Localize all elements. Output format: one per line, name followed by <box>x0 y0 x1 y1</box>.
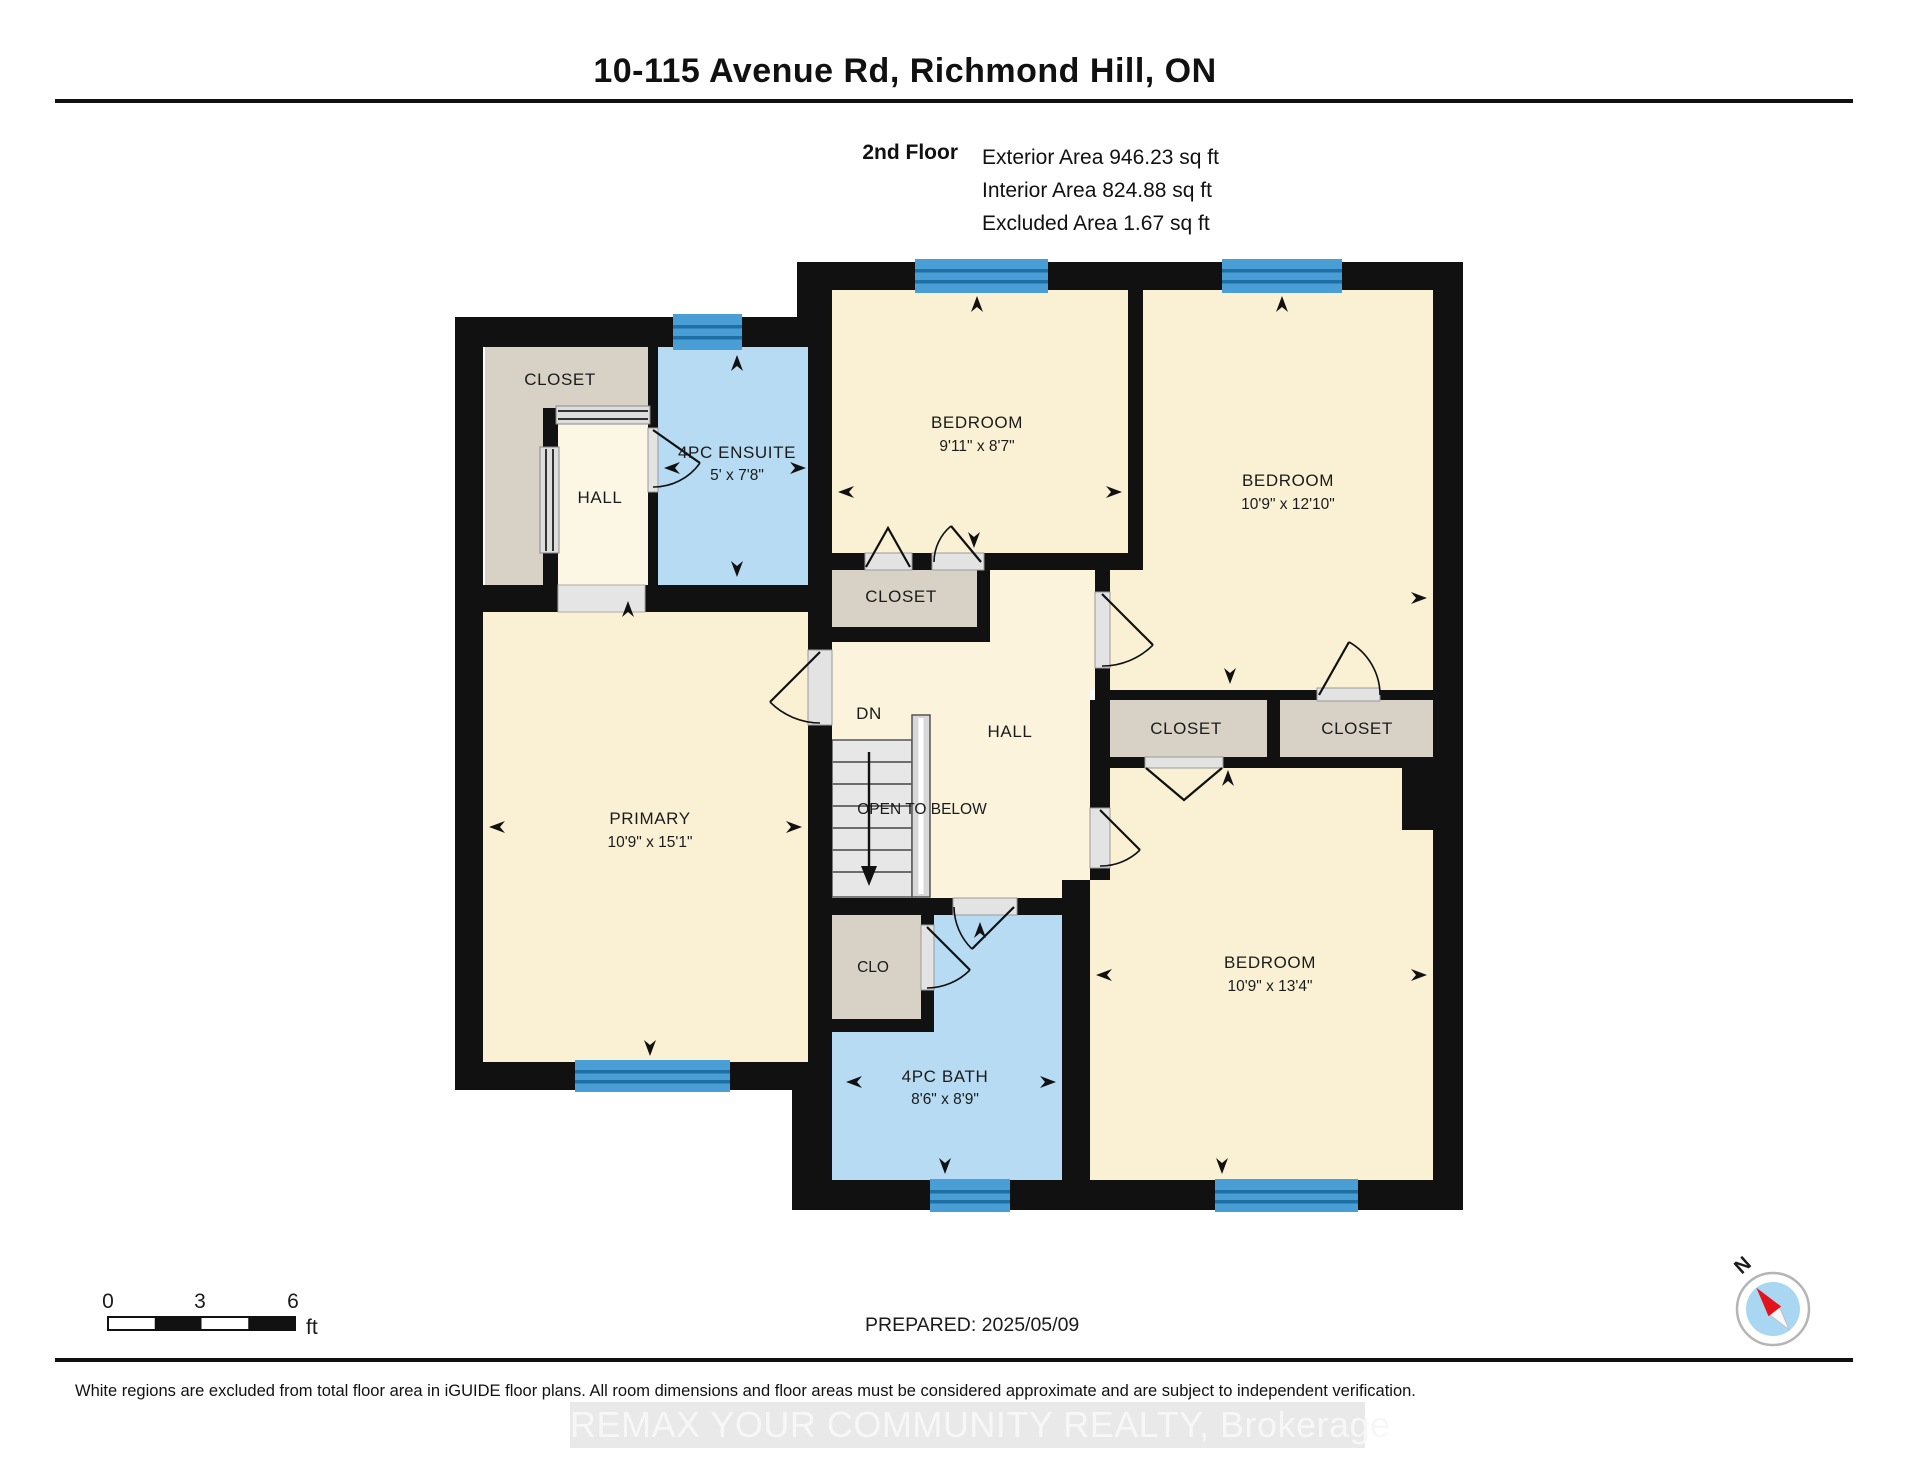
prepared-date: PREPARED: 2025/05/09 <box>865 1314 1079 1336</box>
window-bedroom-top <box>915 259 1048 293</box>
label-bedroom-bottom: BEDROOM <box>1224 953 1316 972</box>
label-clo: CLO <box>857 959 889 976</box>
label-hall-small: HALL <box>578 488 623 507</box>
opening-primary-hall <box>558 585 645 612</box>
label-open-to-below: OPEN TO BELOW <box>857 801 987 818</box>
dims-bedroom-right: 10'9" x 12'10" <box>1241 496 1335 513</box>
label-bedroom-top: BEDROOM <box>931 413 1023 432</box>
label-closet-row-left: CLOSET <box>1150 719 1222 738</box>
scale-tick-0: 0 <box>102 1290 114 1313</box>
window-primary <box>575 1060 730 1092</box>
brokerage-watermark: REMAX YOUR COMMUNITY REALTY, Brokerage <box>570 1402 1365 1448</box>
scale-bar: 0 3 6 ft <box>102 1290 318 1339</box>
window-ensuite <box>673 314 742 350</box>
dims-bath: 8'6" x 8'9" <box>911 1091 979 1108</box>
disclaimer-text: White regions are excluded from total fl… <box>75 1382 1416 1401</box>
compass-north-label: N <box>1730 1253 1755 1279</box>
label-ensuite: 4PC ENSUITE <box>678 443 796 462</box>
label-closet-center: CLOSET <box>865 587 937 606</box>
pocket-door <box>540 447 559 553</box>
window-bedroom-bottom <box>1215 1179 1358 1212</box>
scale-unit: ft <box>306 1316 318 1339</box>
room-ensuite <box>658 347 808 585</box>
label-closet-row-right: CLOSET <box>1321 719 1393 738</box>
room-primary <box>483 598 808 1062</box>
dims-ensuite: 5' x 7'8" <box>710 467 764 484</box>
compass: N <box>1730 1253 1809 1345</box>
label-bedroom-right: BEDROOM <box>1242 471 1334 490</box>
room-bedroom-right <box>1143 290 1433 690</box>
label-hall-center: HALL <box>988 722 1033 741</box>
scale-tick-6: 6 <box>287 1290 299 1313</box>
footer-divider <box>55 1358 1853 1362</box>
wall-notch <box>1402 768 1443 830</box>
floor-plan-page: 10-115 Avenue Rd, Richmond Hill, ON 2nd … <box>0 0 1920 1484</box>
bypass-doors <box>556 406 650 424</box>
dims-primary: 10'9" x 15'1" <box>607 834 692 851</box>
window-bedroom-right <box>1222 259 1342 293</box>
floor-plan-drawing: CLOSET HALL 4PC ENSUITE 5' x 7'8" BEDROO… <box>0 0 1920 1484</box>
dims-bedroom-top: 9'11" x 8'7" <box>939 438 1014 455</box>
label-stairs-dn: DN <box>856 704 882 723</box>
scale-tick-3: 3 <box>194 1290 206 1313</box>
label-bath: 4PC BATH <box>902 1067 989 1086</box>
window-bath <box>930 1179 1010 1212</box>
room-bedroom-bottom <box>1090 768 1433 1180</box>
label-closet-main: CLOSET <box>524 370 596 389</box>
label-primary: PRIMARY <box>609 809 690 828</box>
dims-bedroom-bottom: 10'9" x 13'4" <box>1227 978 1312 995</box>
